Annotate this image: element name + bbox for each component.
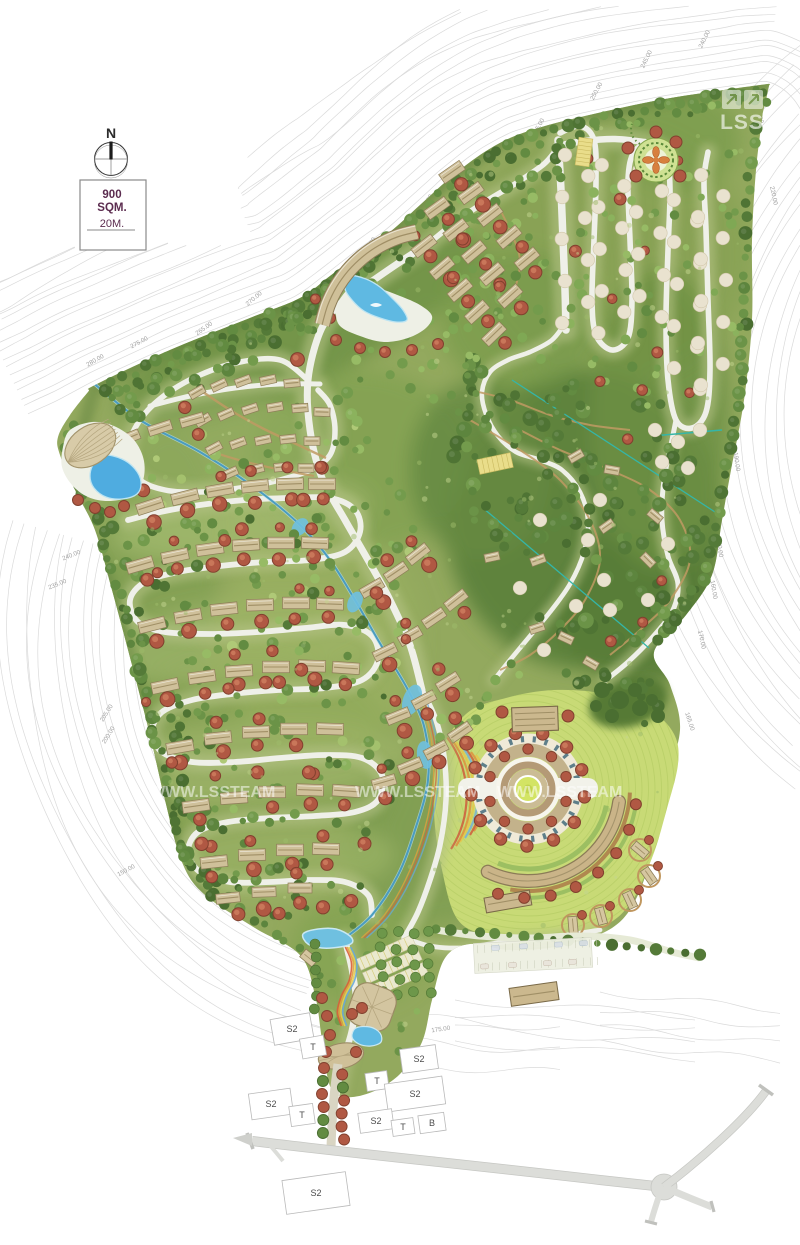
svg-text:S2: S2	[413, 1054, 424, 1064]
svg-text:T: T	[400, 1122, 406, 1132]
svg-text:T: T	[374, 1076, 380, 1086]
svg-text:S2: S2	[265, 1099, 276, 1109]
svg-text:N: N	[106, 125, 116, 141]
svg-text:WWW.LSSTEAM: WWW.LSSTEAM	[150, 784, 275, 801]
svg-text:T: T	[299, 1110, 305, 1120]
svg-text:WWW.LSSTEAM: WWW.LSSTEAM	[497, 784, 622, 801]
svg-text:20M.: 20M.	[100, 218, 124, 230]
svg-text:S2: S2	[286, 1024, 297, 1034]
svg-text:LSS: LSS	[720, 111, 764, 134]
svg-text:SQM.: SQM.	[97, 202, 126, 214]
svg-text:900: 900	[102, 189, 121, 201]
svg-text:S2: S2	[310, 1188, 321, 1198]
svg-text:S2: S2	[409, 1089, 420, 1099]
svg-text:T: T	[310, 1042, 316, 1052]
svg-text:B: B	[429, 1118, 435, 1128]
svg-text:WWW.LSSTEAM: WWW.LSSTEAM	[355, 784, 480, 801]
svg-text:S2: S2	[370, 1116, 381, 1126]
